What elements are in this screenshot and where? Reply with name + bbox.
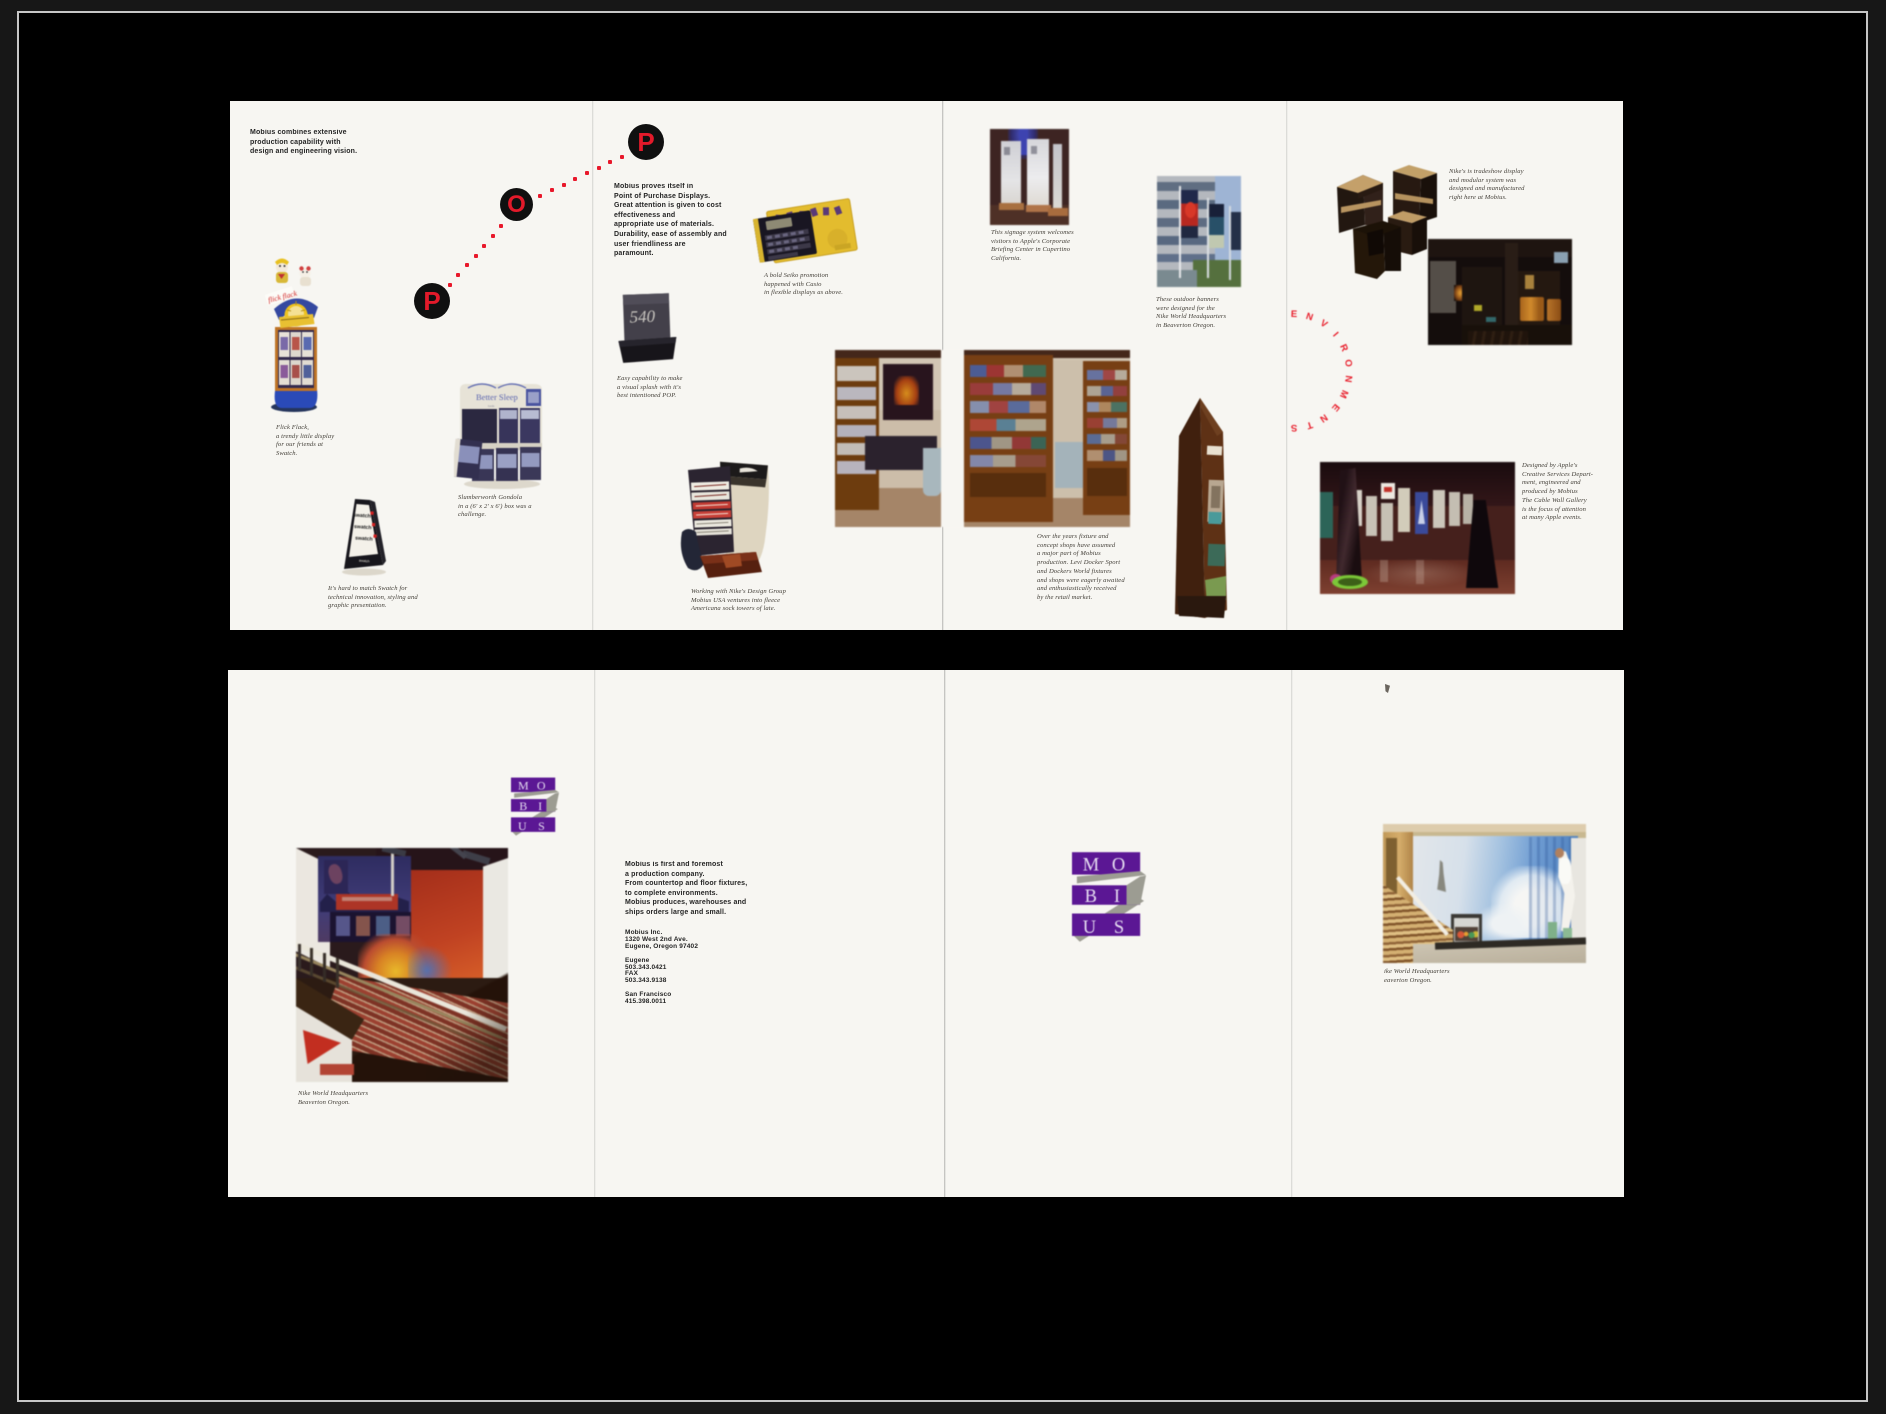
svg-text:M: M — [518, 779, 529, 793]
svg-text:U: U — [1083, 918, 1096, 938]
svg-text:I: I — [538, 799, 542, 813]
svg-text:U: U — [518, 819, 527, 833]
svg-text:T: T — [1305, 419, 1314, 431]
svg-text:S: S — [538, 819, 545, 833]
svg-text:E: E — [1291, 309, 1298, 320]
svg-text:O: O — [1112, 856, 1125, 876]
svg-text:N: N — [1305, 311, 1315, 324]
svg-text:swatch: swatch — [353, 512, 371, 519]
svg-text:N: N — [1318, 411, 1330, 424]
svg-text:Better Sleep: Better Sleep — [476, 392, 518, 402]
svg-text:540: 540 — [629, 307, 656, 327]
svg-text:O: O — [1342, 359, 1354, 368]
svg-text:swatch: swatch — [354, 524, 372, 531]
svg-text:O: O — [537, 779, 546, 793]
svg-text:E: E — [1329, 401, 1342, 413]
svg-text:beds: beds — [488, 404, 495, 408]
svg-text:M: M — [1083, 856, 1099, 876]
svg-text:I: I — [1114, 887, 1120, 907]
svg-text:M: M — [1337, 388, 1350, 400]
svg-text:I: I — [1330, 330, 1340, 339]
svg-text:swatch: swatch — [355, 535, 373, 542]
svg-text:B: B — [1085, 887, 1097, 907]
svg-text:S: S — [1114, 918, 1124, 938]
svg-text:S: S — [1291, 422, 1298, 433]
svg-text:B: B — [519, 799, 527, 813]
svg-text:N: N — [1342, 375, 1354, 383]
svg-text:R: R — [1337, 343, 1350, 354]
svg-text:V: V — [1318, 318, 1330, 331]
